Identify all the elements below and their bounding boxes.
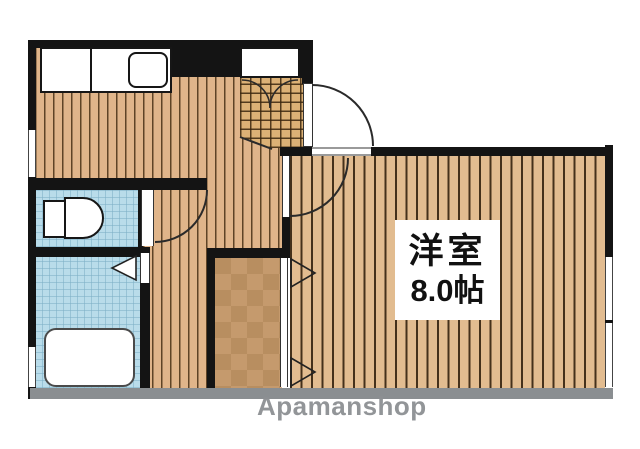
bathtub bbox=[44, 328, 135, 387]
wall-hall-room bbox=[282, 217, 290, 248]
front-door-swing-arc bbox=[312, 85, 373, 146]
floor-plan: 洋室 8.0帖 Apamanshop bbox=[0, 0, 640, 449]
wall-closet-left bbox=[207, 248, 215, 390]
wall-toilet-bath bbox=[35, 247, 150, 257]
kitchen-counter-divider bbox=[90, 49, 92, 91]
door-opening-toilet bbox=[141, 190, 154, 246]
front-door-leaf bbox=[303, 83, 313, 147]
watermark-text: Apamanshop bbox=[257, 393, 427, 419]
wall-closet-top bbox=[207, 248, 290, 258]
window-right-divider bbox=[605, 320, 613, 323]
wall-entry-side bbox=[300, 47, 313, 78]
wall-left bbox=[28, 40, 36, 399]
wall-kitchen-block bbox=[172, 40, 240, 77]
room-size-text: 8.0帖 bbox=[395, 275, 500, 306]
shoe-cabinet bbox=[240, 47, 300, 78]
entrance-genkan-tile bbox=[240, 77, 303, 148]
wall-dk-toilet bbox=[35, 178, 207, 190]
door-opening-western-room bbox=[282, 156, 290, 217]
window-kitchen-left bbox=[28, 130, 36, 177]
room-name-text: 洋室 bbox=[395, 234, 500, 269]
door-opening-bathroom bbox=[140, 253, 150, 283]
front-door-threshold bbox=[312, 147, 371, 156]
closet-folding-door-panel bbox=[280, 258, 288, 387]
wall-top-storage bbox=[240, 40, 313, 47]
kitchen-sink bbox=[128, 52, 168, 88]
toilet-tank bbox=[43, 200, 66, 238]
toilet-bowl bbox=[64, 197, 104, 239]
closet-floor bbox=[215, 258, 280, 388]
room-label: 洋室 8.0帖 bbox=[395, 220, 500, 320]
wall-right bbox=[605, 145, 613, 257]
window-bath-left bbox=[28, 347, 36, 387]
